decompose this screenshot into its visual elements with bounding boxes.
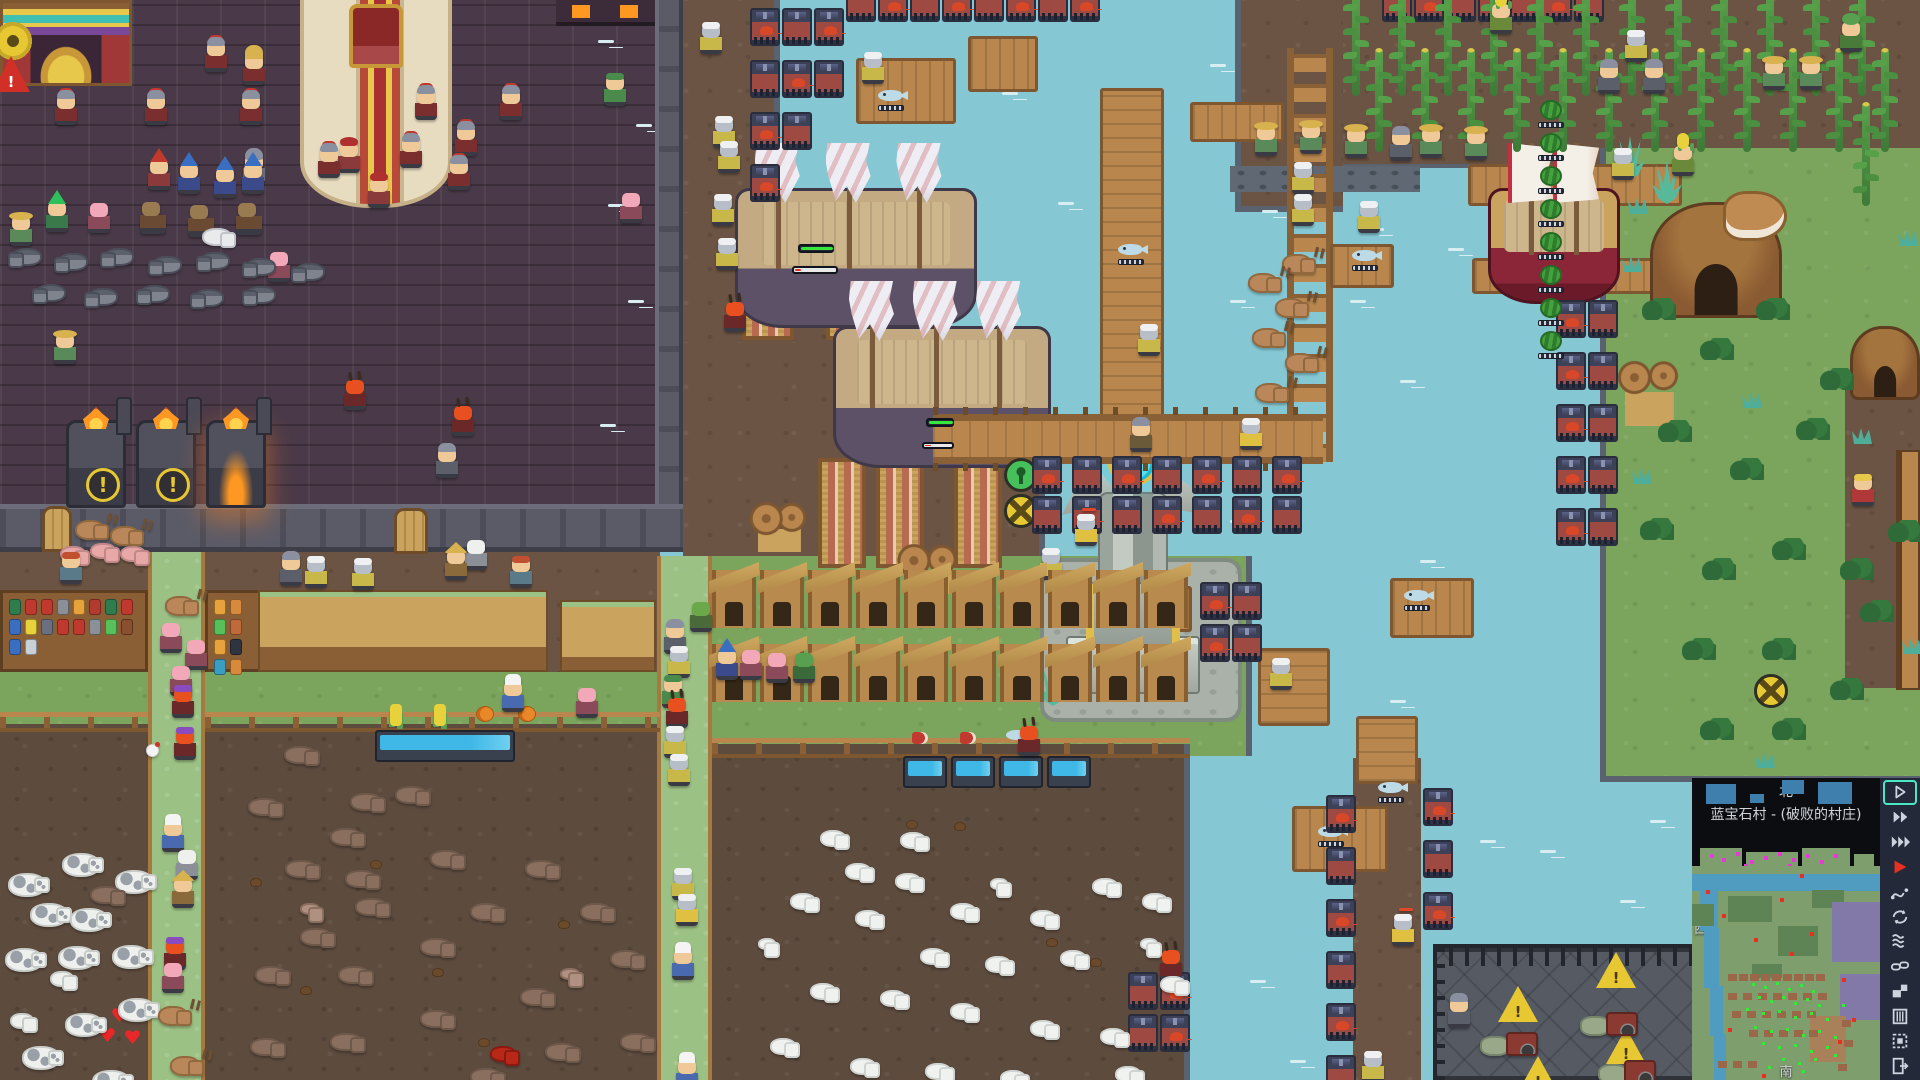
pasture-fence[interactable] <box>712 738 1190 758</box>
palace-edge-building[interactable] <box>556 0 660 26</box>
feed-trough[interactable] <box>951 756 995 788</box>
animal-pigd[interactable] <box>120 546 146 562</box>
feed-trough[interactable] <box>999 756 1043 788</box>
alert-badge[interactable]: ! <box>86 468 120 502</box>
animal-boar[interactable] <box>470 903 502 921</box>
villager-miner[interactable] <box>436 448 458 478</box>
crab-trap[interactable] <box>1556 456 1586 494</box>
crab-trap[interactable] <box>750 60 780 98</box>
crab-trap[interactable] <box>1272 456 1302 494</box>
animal-wolf[interactable] <box>194 289 224 307</box>
watermelon-cargo[interactable] <box>1540 199 1562 219</box>
ship-cargo-bar[interactable] <box>922 442 954 449</box>
crab-trap[interactable] <box>782 60 812 98</box>
villager-wizard-blue[interactable] <box>242 164 264 194</box>
villager-soldier[interactable] <box>240 95 262 125</box>
city-wall-vertical[interactable] <box>655 0 683 552</box>
animal-sheep[interactable] <box>895 873 921 890</box>
animal-lamb[interactable] <box>990 878 1008 890</box>
pasture-fence[interactable] <box>0 712 148 732</box>
berry-bush[interactable] <box>1820 368 1854 390</box>
drying-rack[interactable] <box>954 458 1002 568</box>
villager-cat[interactable] <box>1292 196 1314 226</box>
animal-shelter-hut[interactable] <box>856 570 900 628</box>
animal-sheep[interactable] <box>1000 1070 1026 1080</box>
crab-trap[interactable] <box>1232 624 1262 662</box>
animal-calf[interactable] <box>50 971 74 987</box>
animal-shelter-hut[interactable] <box>1000 570 1044 628</box>
villager-farmer[interactable] <box>1255 126 1277 156</box>
watermelon-cargo[interactable] <box>1540 166 1562 186</box>
crab-trap[interactable] <box>1152 456 1182 494</box>
villager-pig[interactable] <box>162 963 184 993</box>
villager-cat[interactable] <box>1625 32 1647 62</box>
quarry-fence[interactable] <box>1433 944 1445 1080</box>
corn-stalk[interactable] <box>1398 0 1406 96</box>
animal-boar[interactable] <box>420 938 452 956</box>
corn-stalk[interactable] <box>1697 48 1705 152</box>
fishing-pier[interactable] <box>1258 648 1330 726</box>
villager-ant[interactable] <box>666 698 688 728</box>
small-tent[interactable] <box>1850 326 1920 400</box>
corn-stalk[interactable] <box>1789 48 1797 152</box>
corn-stalk[interactable] <box>1513 48 1521 152</box>
animal-cow[interactable] <box>22 1046 60 1070</box>
waves-button[interactable] <box>1883 929 1917 954</box>
villager-cat[interactable] <box>700 24 722 54</box>
crab-trap[interactable] <box>1326 951 1356 989</box>
villager-soldier[interactable] <box>500 90 522 120</box>
drying-rack[interactable] <box>818 458 866 568</box>
villager-soldier[interactable] <box>55 95 77 125</box>
villager-ant[interactable] <box>724 302 746 332</box>
animal-sheep[interactable] <box>950 903 976 920</box>
animal-sheep[interactable] <box>1030 1020 1056 1037</box>
crab-trap[interactable] <box>1128 1014 1158 1052</box>
animal-shelter-hut[interactable] <box>1144 644 1188 702</box>
villager-ant[interactable] <box>1018 726 1040 756</box>
animal-sheep[interactable] <box>880 990 906 1007</box>
market-shelf[interactable] <box>0 590 148 672</box>
villager-soldier[interactable] <box>400 138 422 168</box>
villager-cat[interactable] <box>1138 326 1160 356</box>
villager-cat-y[interactable] <box>1240 420 1262 450</box>
animal-boar[interactable] <box>395 786 427 804</box>
animal-cow[interactable] <box>65 1013 103 1037</box>
villager-cat[interactable] <box>1612 150 1634 180</box>
animal-cow[interactable] <box>70 908 108 932</box>
villager-antp[interactable] <box>174 730 196 760</box>
market-shelf[interactable] <box>205 590 261 672</box>
animal-deer[interactable] <box>110 526 140 546</box>
animal-boar[interactable] <box>420 1010 452 1028</box>
animal-sheep[interactable] <box>810 983 836 1000</box>
animal-sheep[interactable] <box>925 1063 951 1080</box>
berry-bush[interactable] <box>1772 718 1806 740</box>
animal-sheep[interactable] <box>1030 910 1056 927</box>
watermelon-cargo[interactable] <box>1540 298 1562 318</box>
crab-trap[interactable] <box>750 112 780 150</box>
crab-trap[interactable] <box>1556 508 1586 546</box>
animal-shelter-hut[interactable] <box>1048 644 1092 702</box>
corn-feed-icon[interactable] <box>434 704 446 726</box>
animal-deer[interactable] <box>75 520 105 540</box>
crab-trap[interactable] <box>1200 582 1230 620</box>
crab-trap[interactable] <box>1112 456 1142 494</box>
crab-trap[interactable] <box>1152 496 1182 534</box>
crab-trap[interactable] <box>1588 300 1618 338</box>
animal-cow[interactable] <box>5 948 43 972</box>
crab-trap[interactable] <box>1423 892 1453 930</box>
ship-hull-bar[interactable] <box>798 244 834 253</box>
animal-wolf[interactable] <box>88 288 118 306</box>
pier[interactable] <box>1356 716 1418 784</box>
minimap-panel[interactable]: 北 蓝宝石村 - (破败的村庄) 西 东 南 <box>1692 778 1880 1080</box>
villager-pig[interactable] <box>620 193 642 223</box>
animal-shelter-hut[interactable] <box>1048 570 1092 628</box>
crab-trap[interactable] <box>910 0 940 22</box>
animal-boar[interactable] <box>300 928 332 946</box>
animal-boar[interactable] <box>610 950 642 968</box>
villager-wizard-red[interactable] <box>148 160 170 190</box>
crab-trap[interactable] <box>1232 582 1262 620</box>
berry-bush[interactable] <box>1700 338 1734 360</box>
speed-3-button[interactable] <box>1883 830 1917 855</box>
villager-lizard[interactable] <box>690 602 712 632</box>
villager-cat-y[interactable] <box>676 896 698 926</box>
berry-bush[interactable] <box>1888 520 1920 542</box>
villager-cat[interactable] <box>1362 1053 1384 1080</box>
animal-boar[interactable] <box>525 860 557 878</box>
villager-soldier[interactable] <box>318 148 340 178</box>
villager-soldier[interactable] <box>415 90 437 120</box>
watermelon-cargo[interactable] <box>1540 100 1562 120</box>
crab-trap[interactable] <box>1326 1055 1356 1080</box>
animal-cow[interactable] <box>58 946 96 970</box>
corn-stalk[interactable] <box>1881 48 1889 152</box>
corn-stalk[interactable] <box>1720 0 1728 96</box>
crab-trap[interactable] <box>1326 847 1356 885</box>
animal-shelter-hut[interactable] <box>760 570 804 628</box>
animal-shelter-hut[interactable] <box>712 570 756 628</box>
animal-sheep[interactable] <box>920 948 946 965</box>
villager-cabbage[interactable] <box>1840 22 1862 52</box>
villager-soldier[interactable] <box>145 95 167 125</box>
villager-horse-knight[interactable] <box>243 55 265 85</box>
furnace[interactable] <box>206 420 266 508</box>
crab-trap[interactable] <box>1070 0 1100 22</box>
animal-boar[interactable] <box>430 850 462 868</box>
pumpkin-feed-icon[interactable] <box>476 706 494 722</box>
crab-trap[interactable] <box>1112 496 1142 534</box>
animal-deer[interactable] <box>1282 254 1312 274</box>
berry-bush[interactable] <box>1640 518 1674 540</box>
villager-cat[interactable] <box>718 143 740 173</box>
grid-button[interactable] <box>1883 1028 1917 1053</box>
corn-stalk[interactable] <box>1862 102 1870 206</box>
animal-boar[interactable] <box>355 898 387 916</box>
animal-piglet[interactable] <box>560 968 580 980</box>
villager-soldier[interactable] <box>205 42 227 72</box>
animal-sheep[interactable] <box>1092 878 1118 895</box>
crab-trap[interactable] <box>1192 496 1222 534</box>
animal-shelter-hut[interactable] <box>1096 644 1140 702</box>
animal-boar[interactable] <box>520 988 552 1006</box>
stall-edge[interactable] <box>1896 450 1920 690</box>
animal-cow[interactable] <box>112 945 150 969</box>
villager-chef[interactable] <box>672 950 694 980</box>
corn-stalk[interactable] <box>1444 0 1452 96</box>
ship-cargo-bar[interactable] <box>792 266 838 274</box>
animal-deer[interactable] <box>1255 383 1285 403</box>
villager-farmer[interactable] <box>1465 130 1487 160</box>
villager-soldier[interactable] <box>455 126 477 156</box>
animal-shelter-hut[interactable] <box>904 644 948 702</box>
villager-pig[interactable] <box>576 688 598 718</box>
berry-bush[interactable] <box>1730 458 1764 480</box>
crab-trap[interactable] <box>750 164 780 202</box>
watermelon-cargo[interactable] <box>1540 232 1562 252</box>
alert-badge[interactable]: ! <box>156 468 190 502</box>
animal-wolf[interactable] <box>152 256 182 274</box>
villager-ant[interactable] <box>452 406 474 436</box>
villager-green[interactable] <box>604 76 626 106</box>
animal-sheep[interactable] <box>790 893 816 910</box>
animal-boar[interactable] <box>620 1033 652 1051</box>
animal-shelter-hut[interactable] <box>1144 570 1188 628</box>
crab-trap[interactable] <box>1423 840 1453 878</box>
corn-stalk[interactable] <box>1743 48 1751 152</box>
berry-bush[interactable] <box>1756 298 1790 320</box>
market-counter[interactable] <box>258 590 548 672</box>
horse-cart[interactable] <box>1598 1058 1656 1080</box>
animal-deer[interactable] <box>1248 273 1278 293</box>
corn-stalk[interactable] <box>1375 48 1383 152</box>
villager-miner[interactable] <box>1643 64 1665 94</box>
animal-wolf[interactable] <box>246 258 276 276</box>
villager-owlbear[interactable] <box>236 203 262 235</box>
animal-redcreature[interactable] <box>490 1046 516 1062</box>
speed-2-button[interactable] <box>1883 805 1917 830</box>
animal-wolf[interactable] <box>140 285 170 303</box>
crab-trap[interactable] <box>974 0 1004 22</box>
animal-sheep[interactable] <box>1100 1028 1126 1045</box>
crab-trap[interactable] <box>1006 0 1036 22</box>
meat-feed-icon[interactable] <box>912 732 928 744</box>
animal-sheep[interactable] <box>1115 1066 1141 1080</box>
ship-hull-bar[interactable] <box>926 418 954 427</box>
animal-shelter-hut[interactable] <box>1000 644 1044 702</box>
storage-button[interactable] <box>1883 1003 1917 1028</box>
villager-pig[interactable] <box>160 623 182 653</box>
animal-sheep[interactable] <box>855 910 881 927</box>
animal-shelter-hut[interactable] <box>904 570 948 628</box>
corn-stalk[interactable] <box>1835 48 1843 152</box>
villager-farmer[interactable] <box>1345 128 1367 158</box>
pier[interactable] <box>968 36 1038 92</box>
animal-shelter-hut[interactable] <box>952 570 996 628</box>
speed-indicator[interactable] <box>1883 854 1917 879</box>
villager-farmer[interactable] <box>1800 60 1822 90</box>
animal-boar[interactable] <box>330 1033 362 1051</box>
link-button[interactable] <box>1883 954 1917 979</box>
animal-wolf[interactable] <box>200 252 230 270</box>
villager-chef[interactable] <box>502 682 524 712</box>
villager-chef[interactable] <box>676 1060 698 1080</box>
crab-trap[interactable] <box>1232 456 1262 494</box>
watermelon-cargo[interactable] <box>1540 133 1562 153</box>
animal-wolf[interactable] <box>12 248 42 266</box>
villager-cat[interactable] <box>668 648 690 678</box>
meat-feed-icon[interactable] <box>960 732 976 744</box>
villager-cat[interactable] <box>352 560 374 590</box>
animal-chicken[interactable] <box>146 744 159 757</box>
crab-trap[interactable] <box>1423 788 1453 826</box>
animal-pigd[interactable] <box>90 543 116 559</box>
villager-cat[interactable] <box>305 558 327 588</box>
water-trough[interactable] <box>375 730 515 762</box>
villager-farmer[interactable] <box>54 334 76 364</box>
horse-cart[interactable] <box>1480 1030 1538 1064</box>
villager-cornman[interactable] <box>1672 146 1694 176</box>
animal-deer[interactable] <box>165 596 195 616</box>
crab-trap[interactable] <box>1192 456 1222 494</box>
crab-trap[interactable] <box>878 0 908 22</box>
animal-boar[interactable] <box>250 1038 282 1056</box>
crab-trap[interactable] <box>1160 1014 1190 1052</box>
animal-deer[interactable] <box>158 1006 188 1026</box>
villager-miner[interactable] <box>280 556 302 586</box>
crab-trap[interactable] <box>814 8 844 46</box>
villager-cat[interactable] <box>862 54 884 84</box>
animal-boar[interactable] <box>580 903 612 921</box>
berry-bush[interactable] <box>1830 678 1864 700</box>
villager-antp[interactable] <box>172 688 194 718</box>
animal-boar[interactable] <box>545 1043 577 1061</box>
villager-miner[interactable] <box>1448 998 1470 1028</box>
animal-wolf[interactable] <box>58 253 88 271</box>
animal-sheep[interactable] <box>1160 976 1186 993</box>
crab-trap[interactable] <box>1200 624 1230 662</box>
villager-blonde[interactable] <box>1852 476 1874 506</box>
animal-wolf[interactable] <box>36 284 66 302</box>
villager-coolie[interactable] <box>172 878 194 908</box>
berry-bush[interactable] <box>1840 558 1874 580</box>
villager-redhead[interactable] <box>510 558 532 588</box>
exit-button[interactable] <box>1883 1053 1917 1078</box>
layers-button[interactable] <box>1883 979 1917 1004</box>
horse-cart[interactable] <box>1580 1010 1638 1044</box>
feed-trough[interactable] <box>1047 756 1091 788</box>
villager-cat[interactable] <box>712 196 734 226</box>
villager-cornman[interactable] <box>1490 4 1512 34</box>
animal-boar[interactable] <box>470 1068 502 1080</box>
animal-cow[interactable] <box>62 853 100 877</box>
villager-cat[interactable] <box>1270 660 1292 690</box>
animal-shelter-hut[interactable] <box>952 644 996 702</box>
crab-trap[interactable] <box>1556 404 1586 442</box>
villager-cat[interactable] <box>1358 203 1380 233</box>
route-button[interactable] <box>1883 879 1917 904</box>
animal-sheep[interactable] <box>900 832 926 849</box>
animal-boar[interactable] <box>330 828 362 846</box>
animal-shelter-hut[interactable] <box>1096 570 1140 628</box>
animal-lamb[interactable] <box>758 938 776 950</box>
feed-trough[interactable] <box>903 756 947 788</box>
corn-feed-icon[interactable] <box>390 704 402 726</box>
crab-trap[interactable] <box>846 0 876 22</box>
villager-owlbear[interactable] <box>140 202 166 234</box>
watermelon-cargo[interactable] <box>1540 265 1562 285</box>
crab-trap[interactable] <box>750 8 780 46</box>
villager-crabcat[interactable] <box>1075 516 1097 546</box>
berry-bush[interactable] <box>1700 718 1734 740</box>
animal-calf[interactable] <box>10 1013 34 1029</box>
corn-stalk[interactable] <box>1674 0 1682 96</box>
animal-boar[interactable] <box>338 966 370 984</box>
crab-trap[interactable] <box>942 0 972 22</box>
villager-ant[interactable] <box>344 380 366 410</box>
animal-lamb[interactable] <box>1140 938 1158 950</box>
minimap-map[interactable]: 西 东 南 <box>1692 866 1880 1080</box>
crab-trap[interactable] <box>1326 795 1356 833</box>
berry-bush[interactable] <box>1796 418 1830 440</box>
crab-trap[interactable] <box>1326 899 1356 937</box>
villager-farmer[interactable] <box>1420 128 1442 158</box>
villager-guard-red[interactable] <box>368 178 390 208</box>
villager-wizard-blue[interactable] <box>178 164 200 194</box>
animal-cow[interactable] <box>8 873 46 897</box>
animal-boar[interactable] <box>285 860 317 878</box>
animal-sheep[interactable] <box>985 956 1011 973</box>
crab-trap[interactable] <box>1128 972 1158 1010</box>
animal-shelter-hut[interactable] <box>808 570 852 628</box>
game-world[interactable]: !!!!!!! 北 蓝宝石村 - (破败的村庄) 西 东 南 <box>0 0 1920 1080</box>
crab-trap[interactable] <box>782 8 812 46</box>
crab-trap[interactable] <box>782 112 812 150</box>
crab-trap[interactable] <box>1588 404 1618 442</box>
berry-bush[interactable] <box>1658 420 1692 442</box>
villager-wizard-blue[interactable] <box>716 650 738 680</box>
crab-trap[interactable] <box>1588 508 1618 546</box>
villager-pig[interactable] <box>740 650 762 680</box>
tools-sign[interactable] <box>1754 674 1788 708</box>
animal-sheep[interactable] <box>820 830 846 847</box>
animal-sheep[interactable] <box>770 1038 796 1055</box>
animal-deer[interactable] <box>1285 353 1315 373</box>
animal-boar[interactable] <box>248 798 280 816</box>
animal-sheep[interactable] <box>850 1058 876 1075</box>
animal-boar[interactable] <box>255 966 287 984</box>
villager-pig[interactable] <box>766 653 788 683</box>
villager-helmet[interactable] <box>1130 422 1152 452</box>
corn-stalk[interactable] <box>1536 0 1544 96</box>
animal-shelter-hut[interactable] <box>856 644 900 702</box>
crab-trap[interactable] <box>1032 456 1062 494</box>
villager-guard-red[interactable] <box>338 143 360 173</box>
crab-trap[interactable] <box>1272 496 1302 534</box>
crab-trap[interactable] <box>1326 1003 1356 1041</box>
animal-boar[interactable] <box>90 886 122 904</box>
animal-cow[interactable] <box>118 998 156 1022</box>
crab-trap[interactable] <box>1038 0 1068 22</box>
crab-trap[interactable] <box>1032 496 1062 534</box>
villager-coolie[interactable] <box>445 550 467 580</box>
animal-sheep[interactable] <box>1060 950 1086 967</box>
berry-bush[interactable] <box>1642 298 1676 320</box>
animal-piglet[interactable] <box>300 903 320 915</box>
berry-bush[interactable] <box>1702 558 1736 580</box>
